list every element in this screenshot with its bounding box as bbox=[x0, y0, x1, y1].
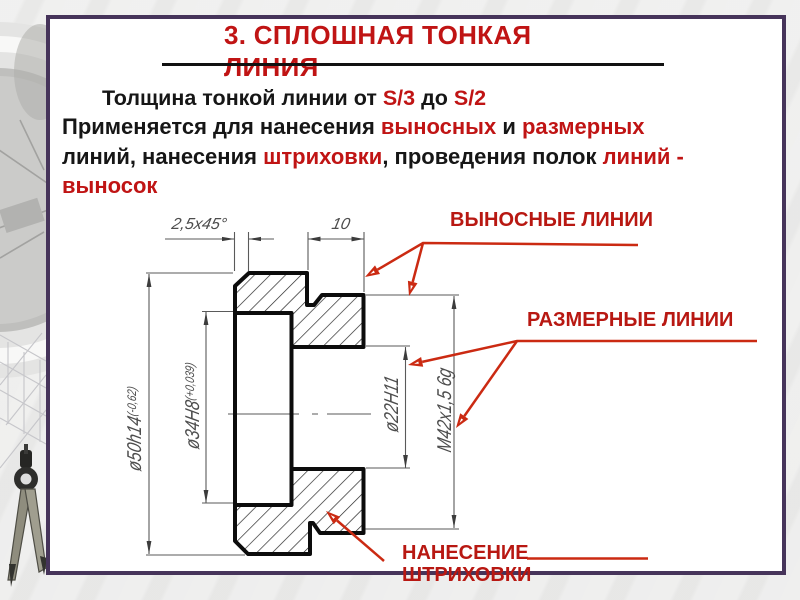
svg-text:10: 10 bbox=[330, 215, 352, 233]
svg-text:M42x1,5 6g: M42x1,5 6g bbox=[432, 365, 455, 454]
svg-text:ø22H11: ø22H11 bbox=[379, 373, 402, 434]
svg-text:ø34H8(+0,039): ø34H8(+0,039) bbox=[180, 360, 203, 451]
svg-text:ø50h14(-0,62): ø50h14(-0,62) bbox=[122, 384, 145, 473]
svg-text:2,5x45°: 2,5x45° bbox=[169, 215, 229, 233]
